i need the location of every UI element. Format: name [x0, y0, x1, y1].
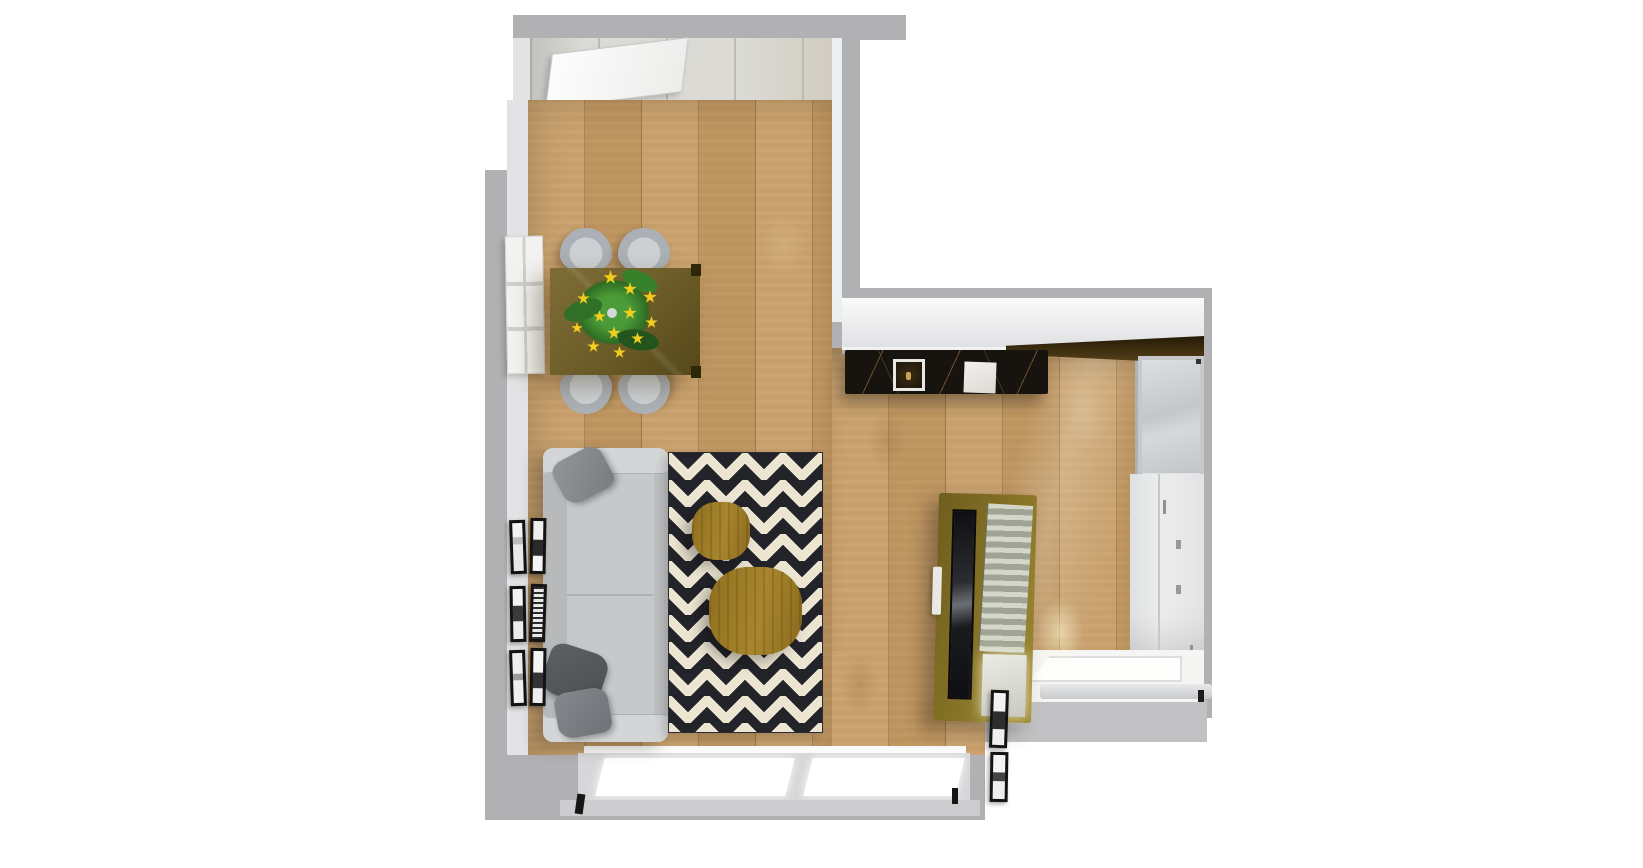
wall-stub — [860, 15, 906, 40]
window-pane-right — [803, 758, 964, 796]
picture-frame[interactable] — [529, 584, 547, 643]
coffee-table-small[interactable] — [692, 502, 750, 560]
flower-plant[interactable] — [565, 270, 660, 355]
wall-face-right-top — [832, 38, 842, 322]
picture-frame[interactable] — [990, 752, 1009, 802]
kitchen-hob[interactable] — [963, 361, 996, 393]
table-leg-nub-2 — [691, 366, 701, 378]
dining-chair-1[interactable] — [560, 228, 612, 272]
table-leg-nub-1 — [691, 264, 701, 276]
balcony-handle-tick — [1198, 690, 1204, 702]
picture-frame[interactable] — [989, 690, 1009, 749]
cabinet-handle-3 — [1176, 585, 1181, 594]
flower — [587, 340, 600, 353]
kitchen-counter[interactable] — [845, 350, 1048, 394]
tall-cabinets[interactable] — [1130, 474, 1204, 664]
floor-plan-canvas — [0, 0, 1643, 868]
tv-unit[interactable] — [933, 493, 1037, 723]
picture-frame[interactable] — [509, 520, 527, 575]
sofa-front-edge — [654, 474, 668, 714]
dining-chair-2[interactable] — [618, 228, 670, 272]
sofa-pillow-bottom-light[interactable] — [552, 686, 613, 741]
sink-faucet-dot — [906, 372, 911, 380]
slatted-panel — [978, 503, 1033, 654]
coffee-table-large[interactable] — [709, 567, 802, 655]
unit-handle — [932, 567, 942, 615]
balcony-sill-bar — [1040, 684, 1212, 699]
radiator-panel — [505, 236, 545, 375]
kitchen-window — [1138, 356, 1204, 482]
plant-vase — [607, 308, 617, 318]
sofa-seat-seam — [567, 594, 653, 596]
picture-frame[interactable] — [530, 518, 547, 574]
window-pane-left — [595, 758, 794, 796]
cabinet-handle-1 — [1163, 500, 1166, 514]
picture-frame[interactable] — [509, 650, 527, 707]
cabinet-handle-2 — [1176, 540, 1181, 549]
outer-sill — [560, 800, 980, 816]
kitchen-window-corner-dot — [1196, 359, 1201, 364]
window-tick-right — [952, 788, 958, 804]
tall-cabinets-seam — [1158, 474, 1160, 664]
sofa[interactable] — [543, 448, 668, 742]
tv-screen — [948, 509, 977, 700]
picture-frame[interactable] — [529, 648, 546, 706]
lamp-glow — [1028, 585, 1092, 680]
picture-frame[interactable] — [510, 586, 527, 642]
